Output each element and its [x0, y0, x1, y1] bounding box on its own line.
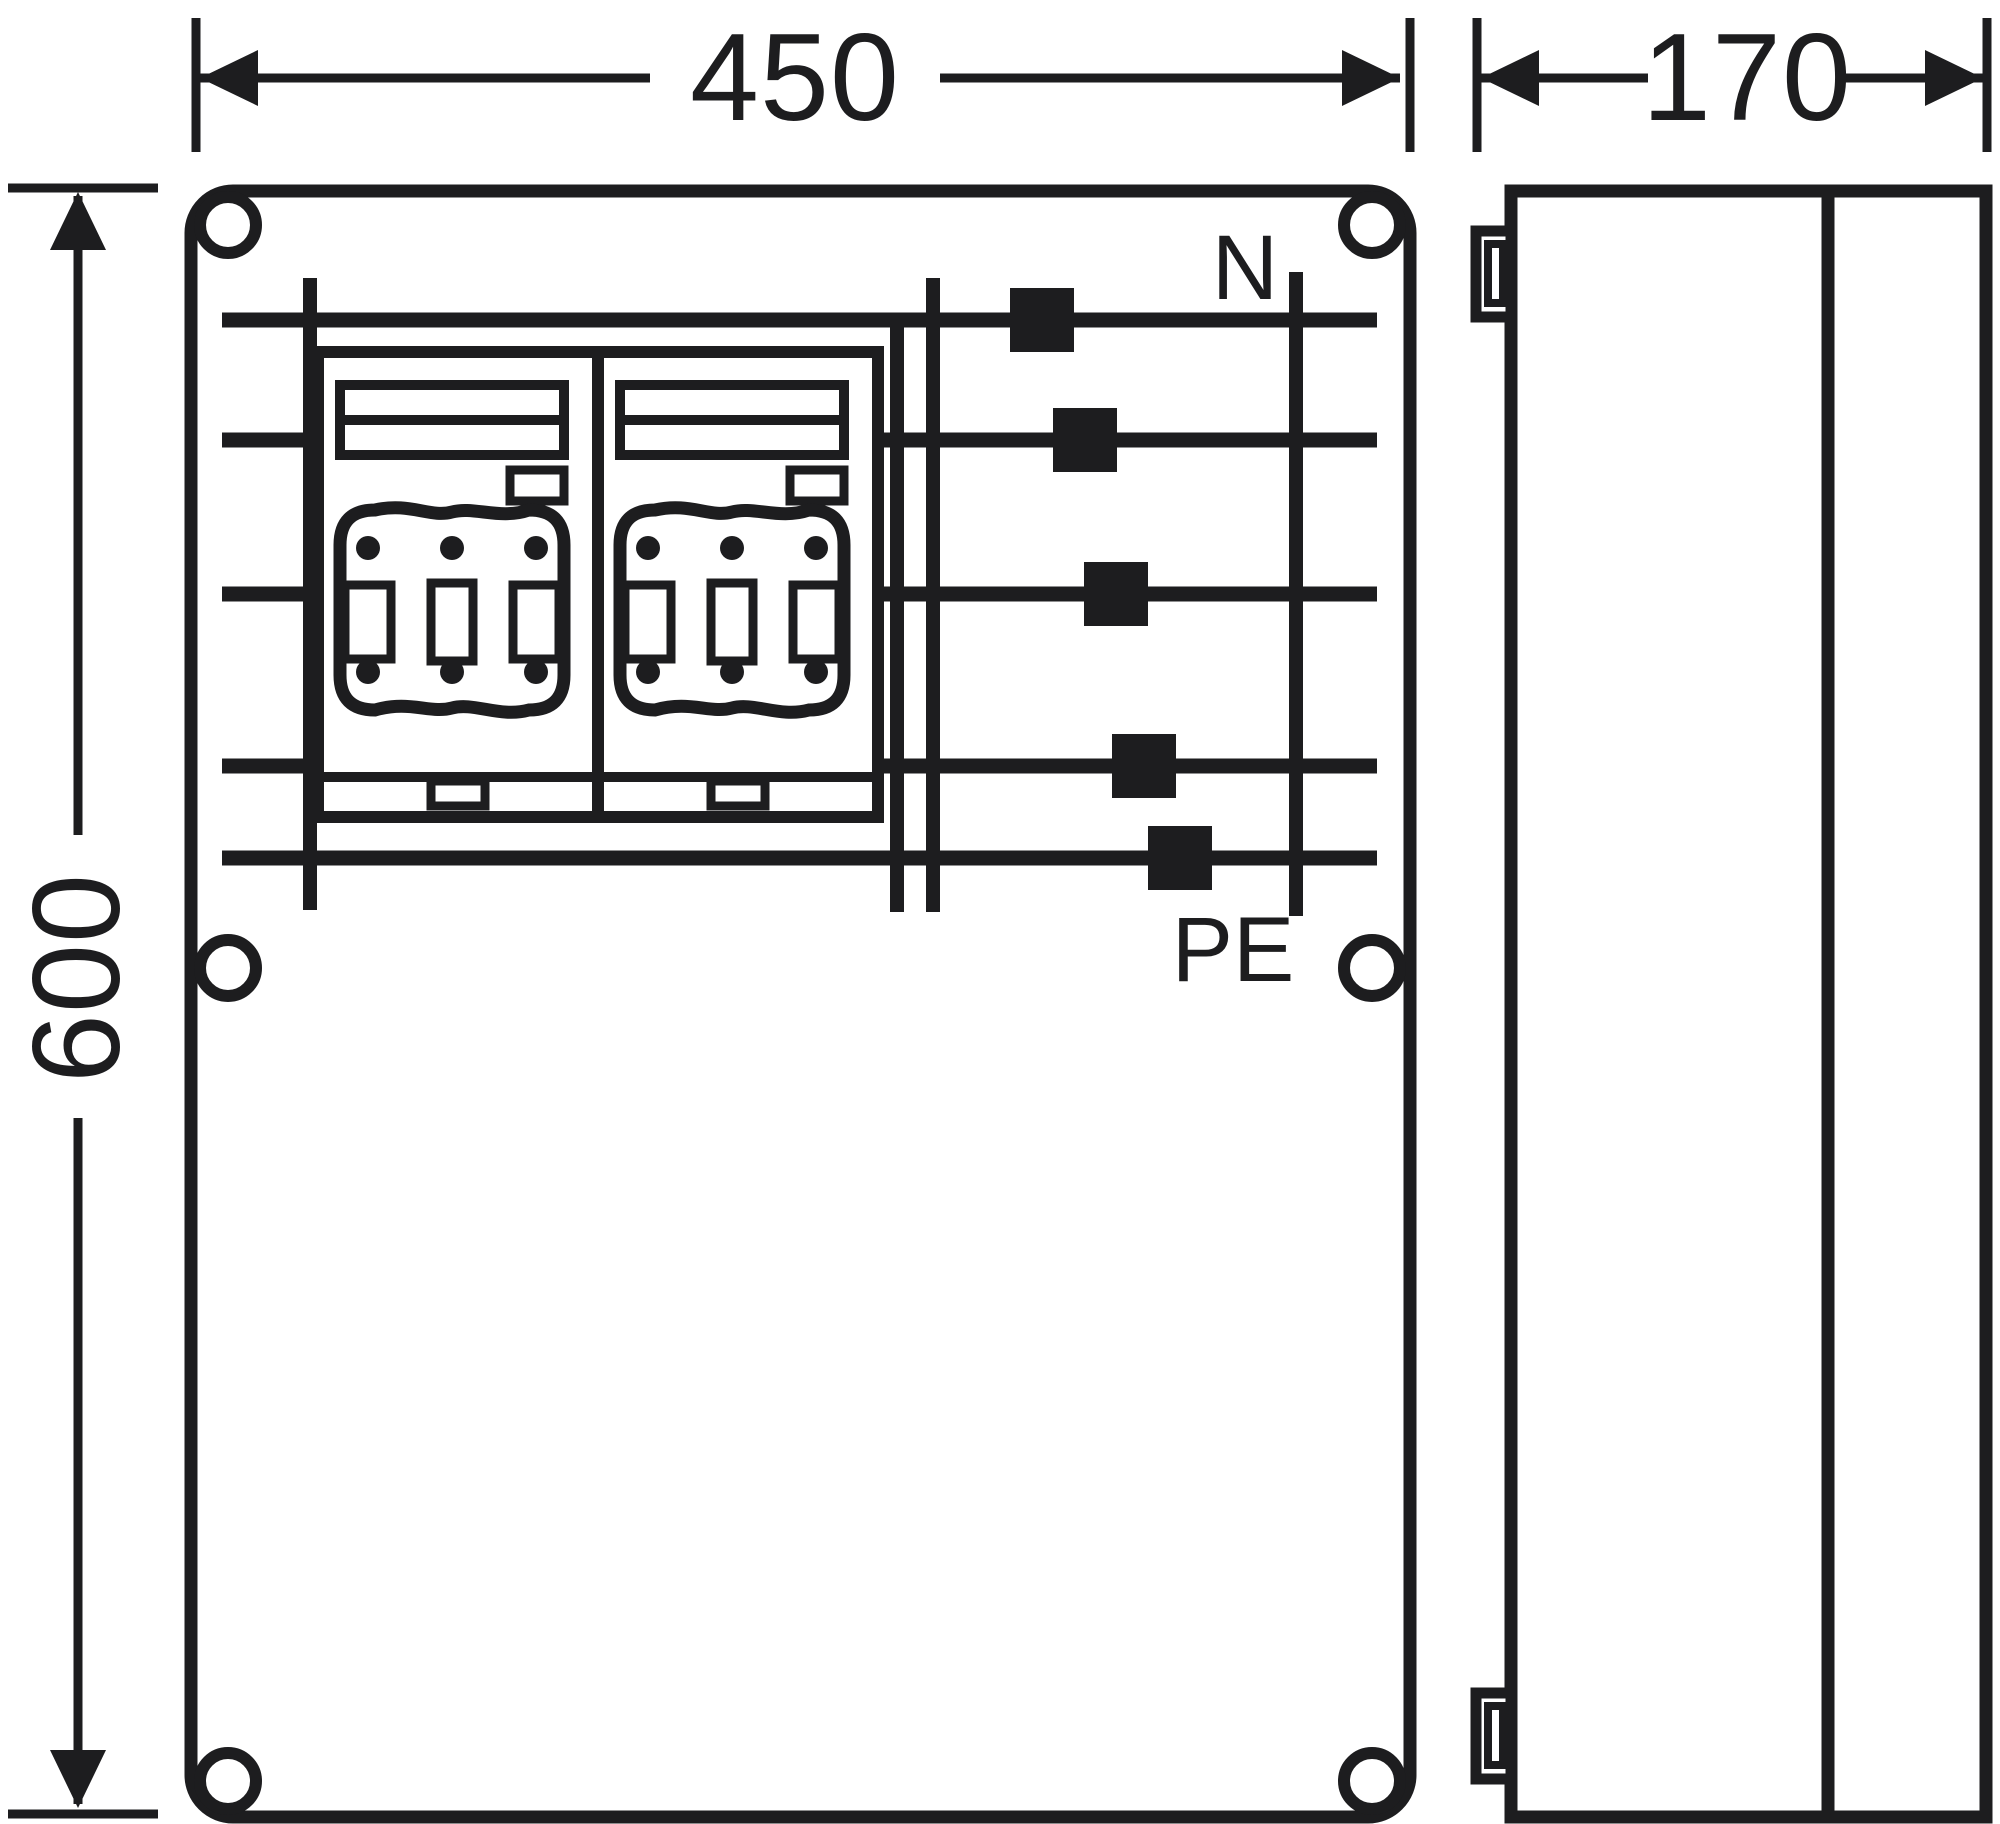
enclosure-drawing: 450 170 600 [0, 0, 2000, 1824]
mounting-hole-mid-right [1344, 940, 1400, 996]
pe-busbar-label: PE [1172, 899, 1295, 1001]
depth-dimension-label: 170 [1642, 9, 1852, 147]
connection-square-l1 [1053, 408, 1117, 472]
connection-square-l3 [1112, 734, 1176, 798]
connection-square-l2 [1084, 562, 1148, 626]
side-view [1476, 191, 1986, 1817]
hinge-top [1476, 231, 1511, 317]
mounting-hole-mid-left [200, 940, 256, 996]
latch [510, 470, 564, 501]
neutral-busbar-label: N [1212, 217, 1278, 319]
fuse-switch-unit-2 [598, 352, 878, 817]
width-dimension-label: 450 [690, 9, 900, 147]
front-view: N PE [191, 191, 1410, 1817]
fuse-switch-unit-1 [318, 352, 598, 817]
arrowhead-right-icon [1342, 50, 1400, 106]
mounting-hole-top-left [200, 197, 256, 253]
technical-drawing-page: 450 170 600 [0, 0, 2000, 1824]
hinge-slot [1488, 1706, 1503, 1765]
arrowhead-right-icon [1925, 50, 1983, 106]
mounting-hole-bottom-right [1344, 1753, 1400, 1809]
arrowhead-left-icon [200, 50, 258, 106]
mounting-foot [431, 781, 485, 806]
mounting-hole-bottom-left [200, 1753, 256, 1809]
mounting-hole-top-right [1344, 197, 1400, 253]
hinge-bottom [1476, 1693, 1511, 1779]
hinge-slot [1488, 244, 1503, 303]
connection-square-pe [1148, 826, 1212, 890]
fuse-windows [345, 583, 559, 661]
arrowhead-down-icon [50, 1750, 106, 1808]
arrowhead-left-icon [1481, 50, 1539, 106]
connection-square-n [1010, 288, 1074, 352]
height-dimension-label: 600 [8, 873, 146, 1083]
arrowhead-up-icon [50, 192, 106, 250]
side-enclosure-outline [1511, 191, 1986, 1817]
